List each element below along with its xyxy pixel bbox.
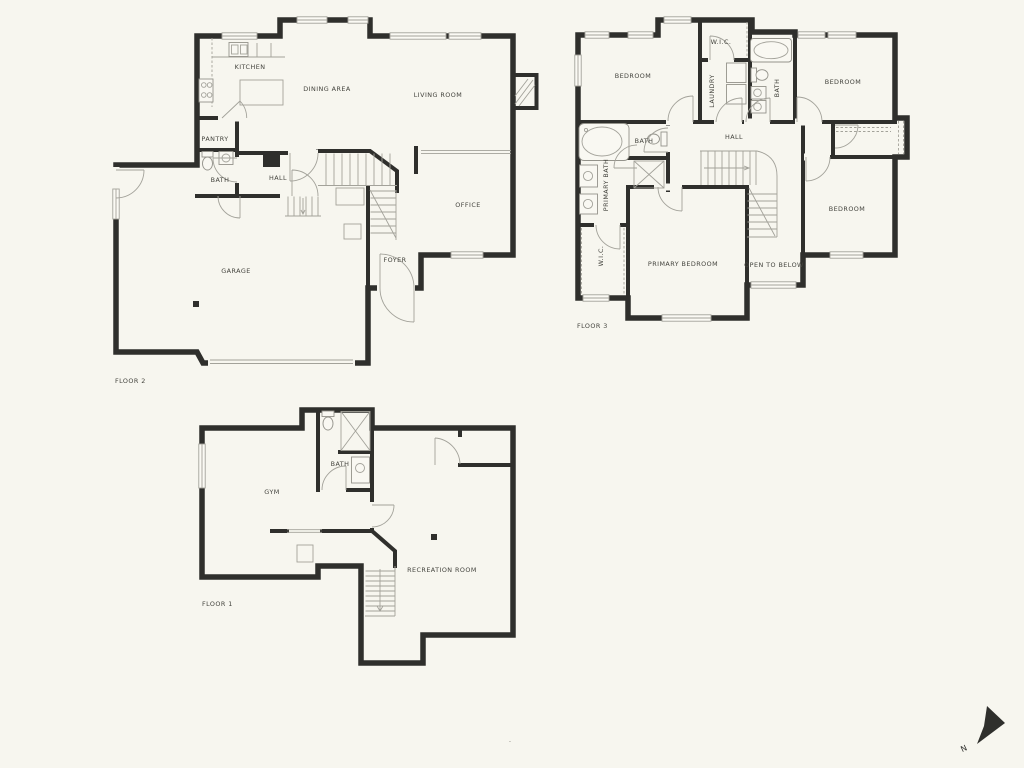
room-label-gym: GYM [264,488,279,496]
north-label: N [959,743,968,754]
tub-icon [579,124,629,161]
kitchen-island-icon [240,80,283,105]
room-label-primary-bath: PRIMARY BATH [602,159,610,211]
room-label-bath-mid: BATH [635,137,654,145]
floor1-interior-walls [272,410,513,566]
office-opening [421,151,511,154]
sink-icon [580,165,598,187]
room-label-bath-top: BATH [773,79,781,98]
fireplace-icon [513,75,537,108]
window [628,32,653,38]
sink-icon [580,194,598,214]
floor1-title: FLOOR 1 [202,600,233,608]
window [583,295,609,301]
room-label-dining-area: DINING AREA [303,85,351,93]
chimney-block [263,154,280,167]
room-label-foyer: FOYER [384,256,407,264]
window [664,17,691,23]
room-label-office: OFFICE [455,201,480,209]
window [297,17,327,23]
room-label-primary-bedroom: PRIMARY BEDROOM [648,260,718,268]
room-label-kitchen: KITCHEN [235,63,266,71]
room-label-living-room: LIVING ROOM [414,91,462,99]
floor2-plan: KITCHEN DINING AREA LIVING ROOM PANTRY B… [113,17,537,452]
floor1-windows [199,444,205,488]
floor3-stairs [700,151,777,237]
stove-icon [199,79,213,102]
primary-bath-fixtures [579,124,667,215]
room-label-open-to-below: OPEN TO BELOW [744,261,804,269]
window [828,32,856,38]
floor1-plan: GYM BATH RECREATION ROOM FLOOR 1 [199,410,513,663]
window [199,444,205,488]
room-label-wic-top: W.I.C. [711,38,732,46]
floor2-windows [113,17,483,258]
window [751,282,796,288]
room-label-hall2: HALL [269,174,287,182]
gym-halfwall-opening [287,530,322,533]
sink-icon [352,457,370,483]
gym-equipment [297,545,313,562]
floor1-outer-walls [202,410,513,663]
window [222,33,257,39]
compass: N [959,706,1005,754]
floor1-stairs [365,566,395,616]
toilet-icon [202,152,213,158]
garage-post [193,301,199,307]
room-label-wic-left: W.I.C. [597,246,605,267]
sink-icon [751,101,766,114]
window [451,252,483,258]
floor2-outer-walls [116,20,513,363]
room-label-bedroom-br: BEDROOM [829,205,866,213]
room-label-pantry: PANTRY [201,135,228,143]
window [348,17,368,23]
floor2-title: FLOOR 2 [115,377,146,385]
room-label-bedroom-tl: BEDROOM [615,72,652,80]
window [113,189,119,219]
window [798,32,825,38]
window [575,55,581,86]
room-label-recreation-room: RECREATION ROOM [407,566,477,574]
recreation-post [431,534,437,540]
window [449,33,481,39]
floor3-plan: BEDROOM W.I.C. LAUNDRY BATH BEDROOM HALL… [575,17,907,330]
floorplan-canvas: KITCHEN DINING AREA LIVING ROOM PANTRY B… [0,0,1024,768]
room-label-bedroom-tr: BEDROOM [825,78,862,86]
room-label-bath2: BATH [211,176,230,184]
north-arrow-icon [977,706,1005,744]
room-label-bath1: BATH [331,460,350,468]
window [830,252,863,258]
window [390,33,446,39]
washer-icon [727,63,747,83]
sink-icon [751,87,766,100]
toilet-icon [661,132,667,146]
floor2-bath-fixtures [202,152,233,171]
room-label-garage: GARAGE [221,267,250,275]
kitchen-counter [199,38,285,107]
room-label-laundry: LAUNDRY [708,74,716,108]
watermark: - [509,738,511,745]
laundry-fixtures [727,63,747,104]
window [662,315,711,321]
window [585,32,609,38]
room-label-hall3: HALL [725,133,743,141]
floor3-title: FLOOR 3 [577,322,608,330]
toilet-icon [322,411,334,417]
